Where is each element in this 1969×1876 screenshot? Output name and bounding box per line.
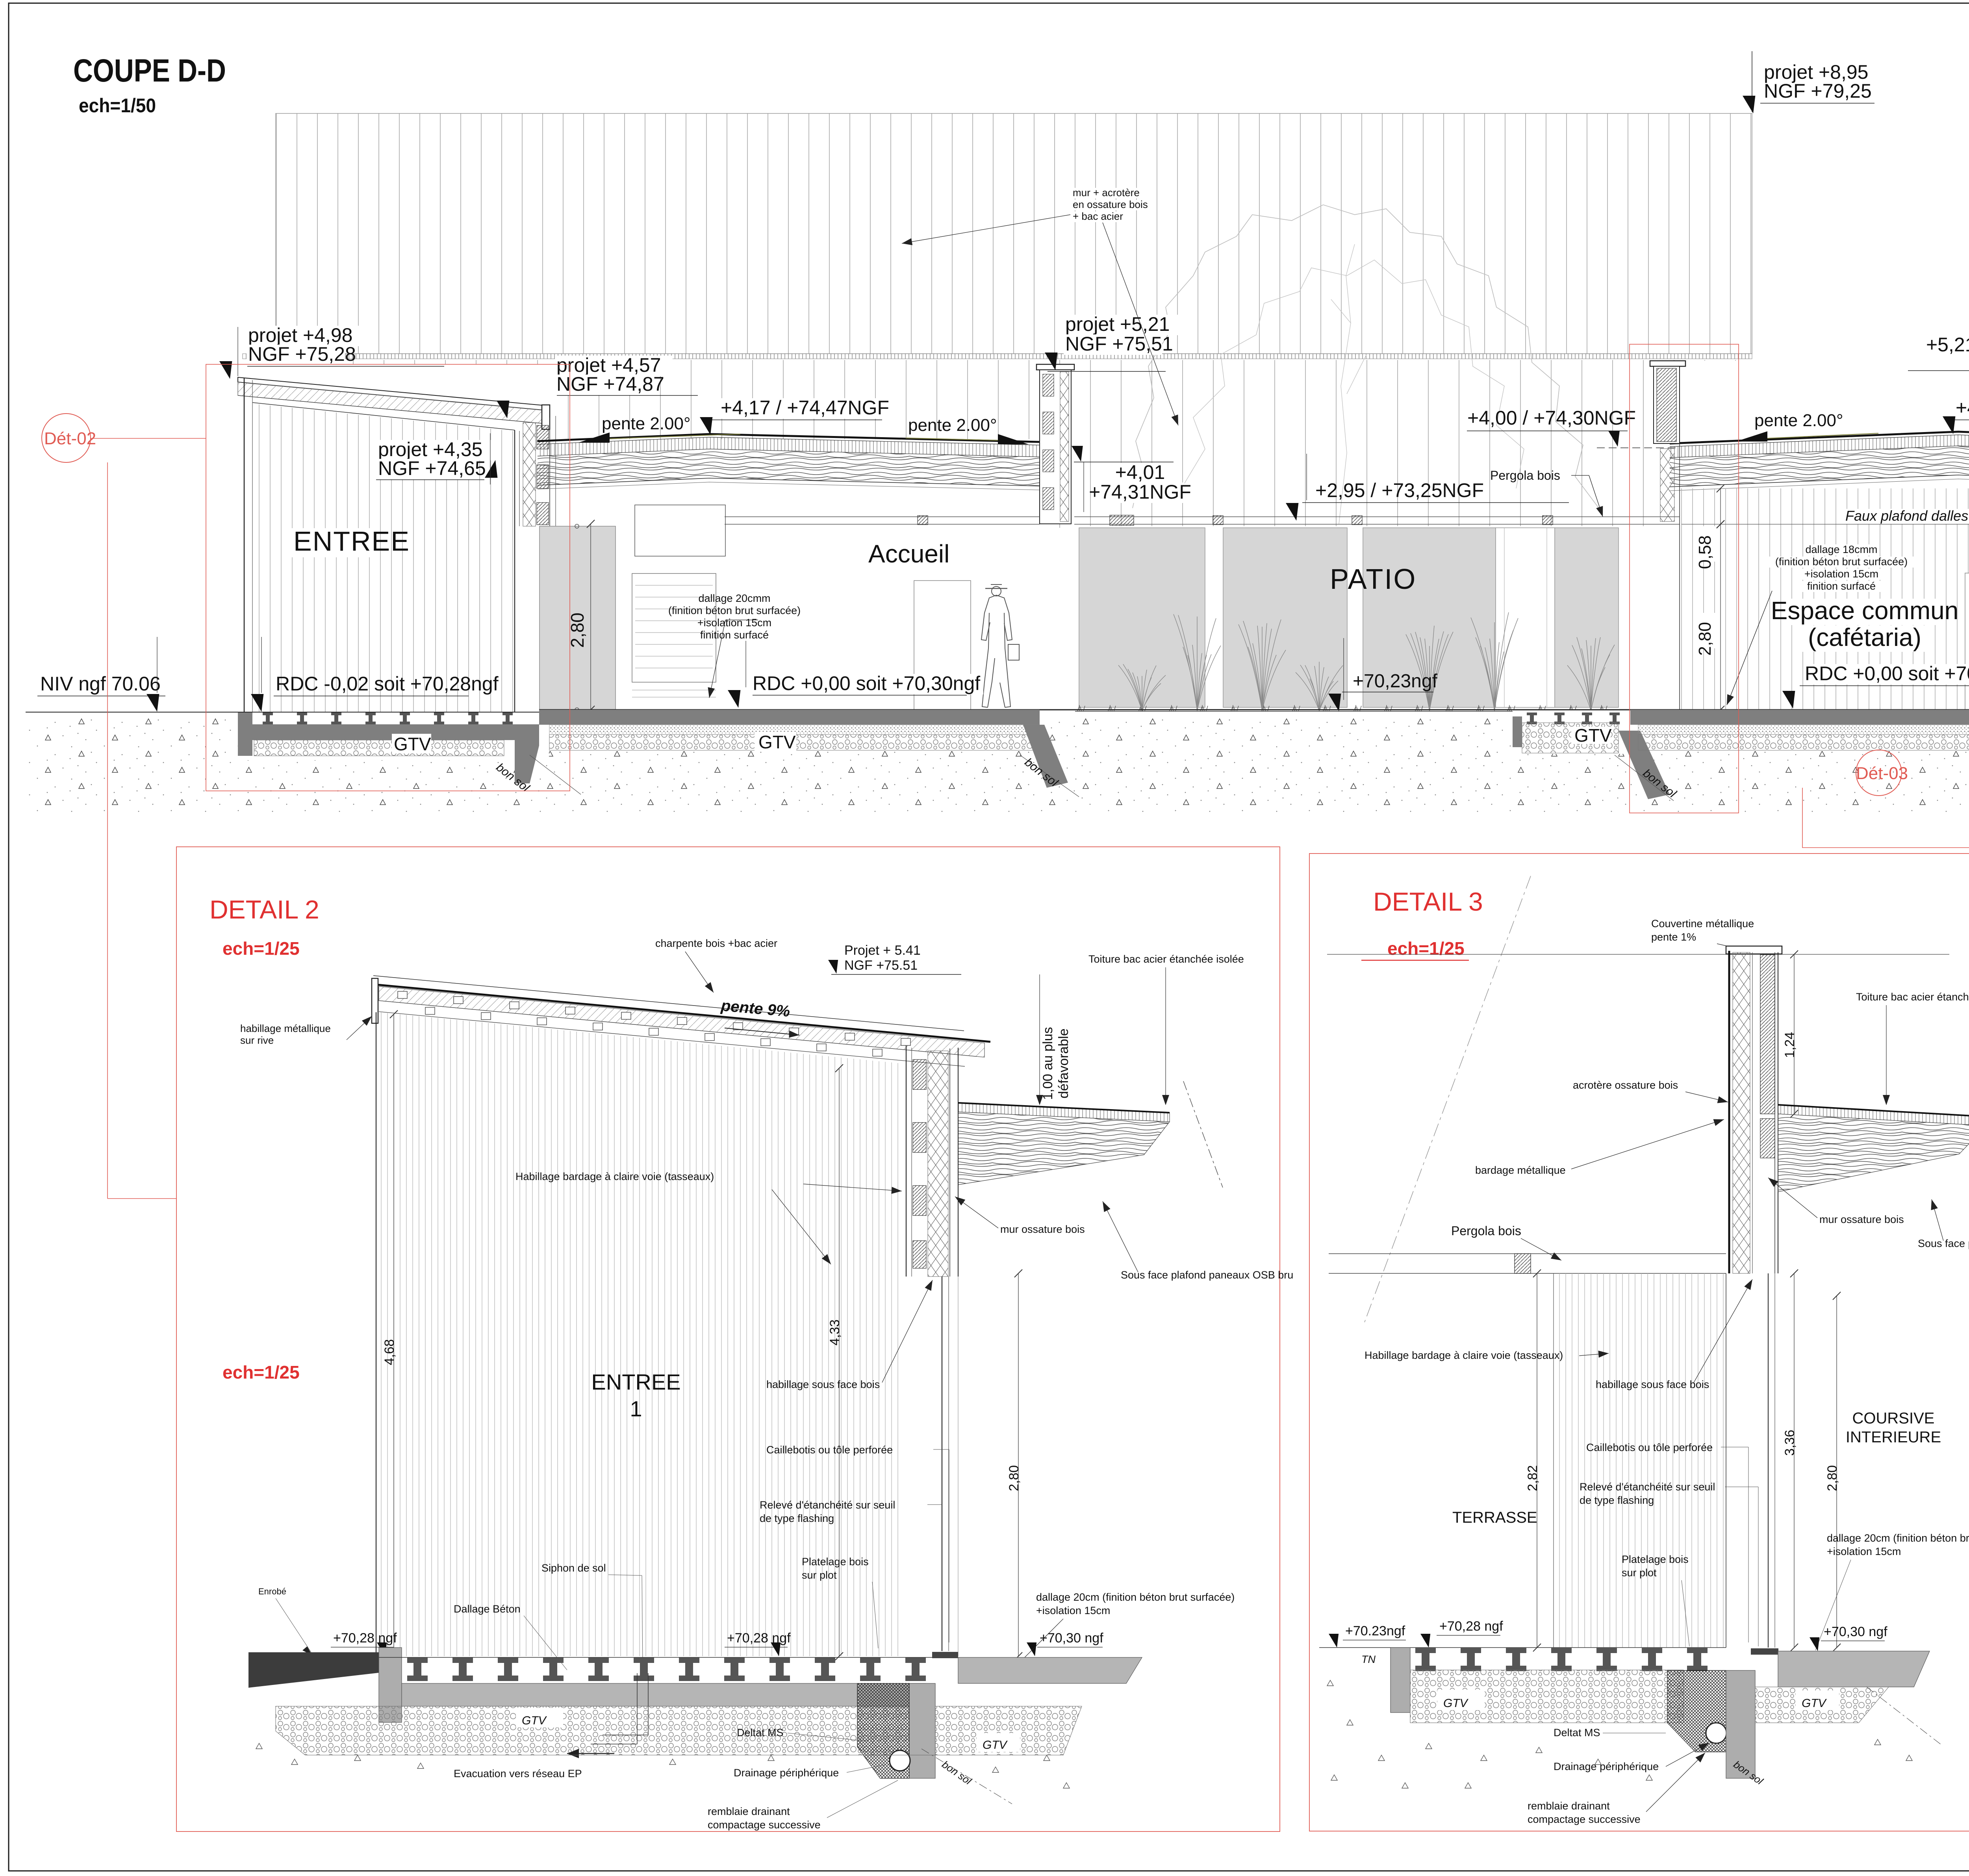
svg-text:Caillebotis ou tôle perforée: Caillebotis ou tôle perforée xyxy=(1586,1442,1713,1453)
svg-text:défavorable: défavorable xyxy=(1056,1028,1071,1099)
svg-text:NGF +75,28: NGF +75,28 xyxy=(248,343,356,365)
svg-text:Dallage Béton: Dallage Béton xyxy=(454,1603,521,1615)
svg-text:Habillage bardage à claire voi: Habillage bardage à claire voie (tasseau… xyxy=(515,1171,714,1182)
svg-text:+70.23ngf: +70.23ngf xyxy=(1345,1624,1405,1638)
svg-text:remblaie drainant: remblaie drainant xyxy=(708,1805,790,1817)
svg-text:+74,31NGF: +74,31NGF xyxy=(1089,481,1191,503)
svg-text:Toiture bac acier étanchée iso: Toiture bac acier étanchée isolée xyxy=(1088,953,1244,965)
svg-text:PATIO: PATIO xyxy=(1330,564,1416,595)
svg-text:(cafétaria): (cafétaria) xyxy=(1808,623,1921,651)
svg-text:+isolation 15cm: +isolation 15cm xyxy=(1804,568,1878,580)
svg-text:DETAIL 3: DETAIL 3 xyxy=(1373,887,1483,916)
svg-text:Caillebotis ou tôle perforée: Caillebotis ou tôle perforée xyxy=(766,1444,893,1456)
svg-text:+5,21 / +75,51NGF: +5,21 / +75,51NGF xyxy=(1926,334,1969,356)
svg-text:habillage sous face bois: habillage sous face bois xyxy=(766,1379,880,1390)
svg-text:RDC +0,00 soit +70,30ngf: RDC +0,00 soit +70,30ngf xyxy=(753,672,980,694)
svg-text:Pergola bois: Pergola bois xyxy=(1451,1224,1521,1238)
svg-text:Drainage périphérique: Drainage périphérique xyxy=(1554,1761,1659,1772)
svg-text:Relevé d'étanchéité sur seuil: Relevé d'étanchéité sur seuil xyxy=(760,1499,895,1511)
svg-text:remblaie drainant: remblaie drainant xyxy=(1528,1800,1610,1812)
svg-text:Sous face plafond paneaux OSB: Sous face plafond paneaux OSB bru xyxy=(1121,1269,1293,1281)
svg-text:4,33: 4,33 xyxy=(827,1319,842,1345)
svg-text:dallage 20cm (finition béton b: dallage 20cm (finition béton brut surfac… xyxy=(1036,1591,1235,1603)
svg-text:1,24: 1,24 xyxy=(1782,1032,1797,1058)
svg-text:ech=1/50: ech=1/50 xyxy=(79,95,156,117)
svg-text:GTV: GTV xyxy=(522,1714,547,1727)
svg-text:compactage successive: compactage successive xyxy=(708,1819,821,1831)
svg-text:Relevé d'étanchéité sur seuil: Relevé d'étanchéité sur seuil xyxy=(1580,1481,1715,1493)
svg-text:Toiture bac acier étanchée iso: Toiture bac acier étanchée isolée xyxy=(1856,991,1969,1003)
svg-text:projet +5,21: projet +5,21 xyxy=(1065,313,1170,335)
svg-text:TERRASSE: TERRASSE xyxy=(1452,1509,1537,1526)
svg-text:mur ossature bois: mur ossature bois xyxy=(1819,1214,1904,1225)
svg-text:2,80: 2,80 xyxy=(1007,1465,1022,1491)
svg-text:pente 2.00°: pente 2.00° xyxy=(908,416,997,435)
svg-text:ech=1/25: ech=1/25 xyxy=(222,938,300,959)
svg-text:sur rive: sur rive xyxy=(240,1034,274,1046)
svg-text:Sous face plafond paneaux C: Sous face plafond paneaux C xyxy=(1918,1238,1969,1249)
svg-text:+70,23ngf: +70,23ngf xyxy=(1353,671,1438,692)
svg-text:RDC -0,02 soit +70,28ngf: RDC -0,02 soit +70,28ngf xyxy=(276,673,499,695)
svg-text:GTV: GTV xyxy=(1574,725,1612,746)
svg-text:ENTREE: ENTREE xyxy=(293,526,410,557)
svg-text:+isolation 15cm: +isolation 15cm xyxy=(1827,1546,1901,1557)
svg-text:NGF +79,25: NGF +79,25 xyxy=(1764,80,1872,102)
svg-text:RDC +0,00 soit +70,30ngf: RDC +0,00 soit +70,30ngf xyxy=(1805,662,1969,685)
svg-text:pente 2.00°: pente 2.00° xyxy=(602,414,691,433)
svg-text:Couvertine métallique: Couvertine métallique xyxy=(1651,918,1754,930)
svg-text:3,36: 3,36 xyxy=(1782,1430,1797,1456)
svg-text:Faux plafond dalles noires: Faux plafond dalles noires xyxy=(1845,508,1969,524)
svg-text:2,80: 2,80 xyxy=(567,612,588,648)
svg-text:4,68: 4,68 xyxy=(382,1339,397,1365)
svg-text:GTV: GTV xyxy=(1802,1697,1827,1710)
svg-text:2,80: 2,80 xyxy=(1695,622,1715,656)
svg-text:dallage 20cmm: dallage 20cmm xyxy=(698,592,770,604)
svg-text:dallage 20cm (finition béton b: dallage 20cm (finition béton brut surfac… xyxy=(1827,1532,1969,1544)
svg-text:habillage métallique: habillage métallique xyxy=(240,1022,331,1034)
svg-text:Evacuation vers réseau EP: Evacuation vers réseau EP xyxy=(454,1768,582,1780)
svg-text:Siphon de sol: Siphon de sol xyxy=(541,1562,606,1574)
svg-text:NGF +75.51: NGF +75.51 xyxy=(844,958,918,973)
svg-text:Accueil: Accueil xyxy=(868,540,949,568)
svg-text:habillage sous face bois: habillage sous face bois xyxy=(1596,1379,1709,1390)
svg-text:+ bac acier: + bac acier xyxy=(1073,210,1123,222)
svg-text:Platelage bois: Platelage bois xyxy=(1622,1553,1689,1565)
svg-text:2,82: 2,82 xyxy=(1525,1465,1540,1491)
svg-text:(finition béton brut surfacée): (finition béton brut surfacée) xyxy=(668,605,801,616)
svg-text:finition surfacé: finition surfacé xyxy=(1807,580,1876,592)
svg-text:Drainage périphérique: Drainage périphérique xyxy=(734,1767,839,1779)
svg-text:+4,00 / +74,30NGF: +4,00 / +74,30NGF xyxy=(1467,407,1636,429)
svg-text:charpente bois +bac acier: charpente bois +bac acier xyxy=(655,937,777,949)
svg-text:bardage métallique: bardage métallique xyxy=(1475,1164,1566,1176)
svg-text:+4,17 / +74,47NGF: +4,17 / +74,47NGF xyxy=(1956,397,1969,419)
svg-text:sur plot: sur plot xyxy=(1622,1567,1657,1579)
svg-text:de type flashing: de type flashing xyxy=(1580,1494,1654,1506)
svg-text:Deltat MS: Deltat MS xyxy=(1554,1727,1600,1739)
svg-text:1,00 au plus: 1,00 au plus xyxy=(1040,1027,1055,1100)
svg-text:compactage successive: compactage successive xyxy=(1528,1813,1641,1825)
svg-text:TN: TN xyxy=(1361,1653,1376,1665)
svg-text:GTV: GTV xyxy=(394,734,431,754)
svg-text:finition surfacé: finition surfacé xyxy=(700,629,769,641)
svg-text:Enrobé: Enrobé xyxy=(258,1587,286,1596)
svg-text:Dét-02: Dét-02 xyxy=(44,429,96,448)
svg-text:GTV: GTV xyxy=(1443,1697,1469,1710)
svg-text:NIV ngf 70.06: NIV ngf 70.06 xyxy=(40,673,161,695)
svg-text:GTV: GTV xyxy=(983,1739,1008,1752)
svg-text:(finition béton brut surfacée): (finition béton brut surfacée) xyxy=(1775,556,1908,568)
svg-text:en ossature bois: en ossature bois xyxy=(1073,199,1148,210)
svg-text:+70,28 ngf: +70,28 ngf xyxy=(727,1631,791,1646)
svg-text:+4,01: +4,01 xyxy=(1115,461,1165,483)
svg-text:+isolation 15cm: +isolation 15cm xyxy=(697,617,771,629)
svg-text:DETAIL 2: DETAIL 2 xyxy=(210,895,319,924)
svg-text:NGF +74,87: NGF +74,87 xyxy=(556,373,664,395)
svg-text:Platelage bois: Platelage bois xyxy=(802,1556,869,1568)
svg-text:pente 1%: pente 1% xyxy=(1651,931,1696,943)
svg-text:de type flashing: de type flashing xyxy=(760,1512,834,1524)
svg-text:NGF +74,65: NGF +74,65 xyxy=(378,457,486,479)
svg-text:1: 1 xyxy=(630,1396,642,1421)
svg-text:+70,28 ngf: +70,28 ngf xyxy=(333,1631,397,1646)
svg-text:Dét-03: Dét-03 xyxy=(1856,764,1908,783)
svg-text:dallage 18cmm: dallage 18cmm xyxy=(1805,544,1877,555)
svg-text:acrotère ossature bois: acrotère ossature bois xyxy=(1573,1079,1678,1091)
svg-text:mur + acrotère: mur + acrotère xyxy=(1073,187,1140,199)
svg-text:COUPE D-D: COUPE D-D xyxy=(73,53,226,89)
svg-text:ech=1/25: ech=1/25 xyxy=(222,1362,300,1382)
svg-text:Espace commun: Espace commun xyxy=(1771,596,1959,625)
svg-text:sur plot: sur plot xyxy=(802,1569,837,1581)
svg-text:Projet + 5.41: Projet + 5.41 xyxy=(844,943,921,958)
svg-text:GTV: GTV xyxy=(758,732,796,752)
svg-text:+4,17 / +74,47NGF: +4,17 / +74,47NGF xyxy=(721,397,889,419)
svg-text:ENTREE: ENTREE xyxy=(591,1369,680,1394)
svg-text:+70,30 ngf: +70,30 ngf xyxy=(1824,1624,1887,1639)
svg-text:ech=1/25: ech=1/25 xyxy=(1387,938,1465,959)
svg-text:2,80: 2,80 xyxy=(1825,1465,1840,1491)
svg-text:+2,95 / +73,25NGF: +2,95 / +73,25NGF xyxy=(1315,479,1484,501)
svg-text:+isolation 15cm: +isolation 15cm xyxy=(1036,1605,1110,1616)
svg-text:0,58: 0,58 xyxy=(1695,535,1715,569)
svg-text:mur ossature bois: mur ossature bois xyxy=(1000,1223,1085,1235)
svg-text:Deltat MS: Deltat MS xyxy=(737,1727,784,1739)
svg-text:Pergola bois: Pergola bois xyxy=(1490,468,1560,482)
svg-text:pente 2.00°: pente 2.00° xyxy=(1754,411,1843,430)
svg-text:COURSIVE: COURSIVE xyxy=(1852,1410,1935,1427)
svg-text:+70,28 ngf: +70,28 ngf xyxy=(1439,1619,1503,1634)
svg-text:Habillage bardage à claire voi: Habillage bardage à claire voie (tasseau… xyxy=(1365,1349,1563,1361)
svg-text:NGF +75,51: NGF +75,51 xyxy=(1065,333,1173,355)
svg-text:INTERIEURE: INTERIEURE xyxy=(1846,1429,1941,1446)
